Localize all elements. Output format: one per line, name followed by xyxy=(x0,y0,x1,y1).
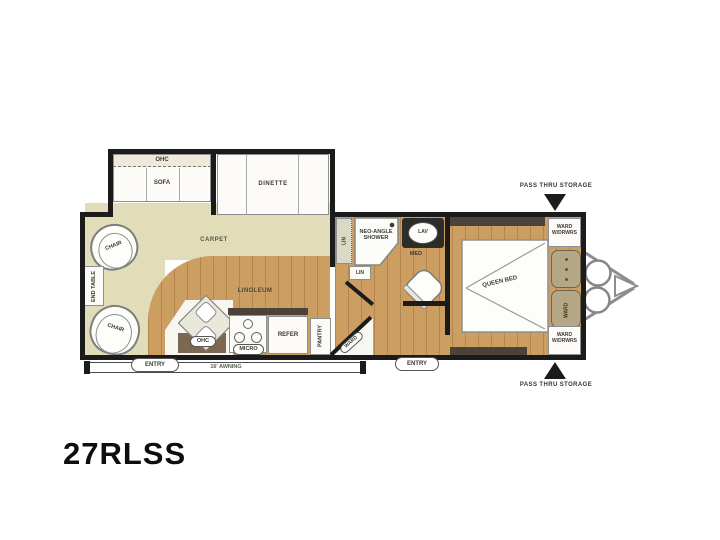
wall-top-slideout xyxy=(108,149,334,154)
awning-label: 16' AWNING xyxy=(210,364,241,370)
model-title: 27RLSS xyxy=(63,436,186,472)
awning-bar: 16' AWNING xyxy=(86,362,366,373)
ward-drwrs-top-label: WARD W/DRWRS xyxy=(550,225,579,236)
linen-cabinet: LIN xyxy=(349,266,371,280)
wall-sofa-dinette-divider xyxy=(211,151,216,215)
carpet-label: CARPET xyxy=(182,237,246,244)
micro-label: MICRO xyxy=(239,346,257,352)
pantry-label: PANTRY xyxy=(311,319,330,354)
bedside-wardrobe: WARD xyxy=(551,290,581,328)
lavatory-sink-icon: LAV xyxy=(408,222,438,244)
linen-closet-label: LIN xyxy=(339,219,351,263)
bedroom-overhead-bottom xyxy=(450,347,527,355)
lavatory-counter: LAV xyxy=(402,218,444,248)
burner-icon xyxy=(251,332,262,343)
ward-drwrs-bottom-label: WARD W/DRWRS xyxy=(550,333,579,344)
bedside-ward-label: WARD xyxy=(561,293,573,327)
linen-cabinet-label: LIN xyxy=(350,271,370,277)
entry-bedroom-pill: ENTRY xyxy=(395,357,439,371)
lav-label: LAV xyxy=(418,230,428,236)
wardrobe-drawers-top: WARD W/DRWRS xyxy=(548,218,581,247)
end-table-label: END TABLE xyxy=(85,267,103,305)
floorplan-page: OHC SOFA DINETTE CARPET LINOLEUM CHAIR E… xyxy=(0,0,720,540)
chair-rear-label: CHAIR xyxy=(93,319,139,339)
sink-basin xyxy=(194,300,218,324)
wall-bedroom-left xyxy=(445,217,450,335)
wardrobe-drawers-bottom: WARD W/DRWRS xyxy=(548,326,581,355)
wall-front xyxy=(581,212,586,360)
hitch-assembly-icon xyxy=(584,252,637,320)
pass-thru-top-arrow-icon xyxy=(544,194,566,211)
wall-rear xyxy=(80,212,85,360)
sofa-label: SOFA xyxy=(113,180,211,187)
kitchen-overhead-strip xyxy=(228,308,308,315)
pantry: PANTRY xyxy=(310,318,331,355)
wall-top-right xyxy=(330,212,586,217)
sofa-ohc-label: OHC xyxy=(113,157,211,164)
cushion-button xyxy=(565,278,568,281)
chair-front-label: CHAIR xyxy=(92,235,135,257)
bedside-cushion-top xyxy=(551,250,581,288)
shower-label: NEO-ANGLE SHOWER xyxy=(355,229,397,241)
end-table: END TABLE xyxy=(84,266,104,306)
burner-icon xyxy=(243,319,253,329)
burner-icon xyxy=(234,332,245,343)
pass-thru-top-label: PASS THRU STORAGE xyxy=(500,183,612,190)
entry-main-label: ENTRY xyxy=(145,362,165,369)
awning-end-cap xyxy=(84,361,90,374)
entry-main-pill: ENTRY xyxy=(131,358,179,372)
micro-pill: MICRO xyxy=(233,344,264,355)
pass-thru-bottom-arrow-icon xyxy=(544,362,566,379)
bedroom-overhead-top xyxy=(450,217,545,226)
kitchen-ohc-label: OHC xyxy=(197,338,209,344)
cushion-button xyxy=(565,258,568,261)
refer-label: REFER xyxy=(269,332,307,339)
wall-bath-bottom xyxy=(403,301,450,306)
cushion-button xyxy=(565,268,568,271)
linen-closet: LIN xyxy=(336,218,352,264)
entry-bedroom-label: ENTRY xyxy=(407,361,427,368)
linoleum-label: LINOLEUM xyxy=(222,288,288,295)
wall-bath-left xyxy=(330,217,335,267)
med-cabinet-label: MED xyxy=(404,251,428,257)
refrigerator: REFER xyxy=(268,316,308,354)
kitchen-ohc-pill: OHC xyxy=(190,336,216,347)
dinette-label: DINETTE xyxy=(217,181,329,188)
awning-end-cap xyxy=(360,361,366,374)
pass-thru-bottom-label: PASS THRU STORAGE xyxy=(500,382,612,389)
wall-step xyxy=(330,149,335,217)
